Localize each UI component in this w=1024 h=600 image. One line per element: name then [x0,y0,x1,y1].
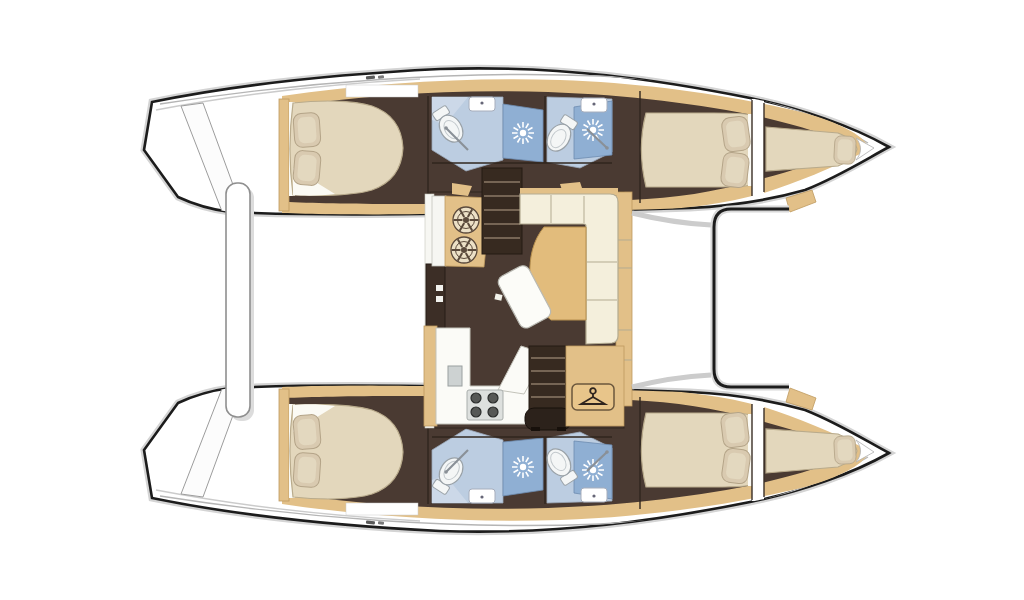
cockpit-bench [226,183,250,417]
hanger-icon [572,384,614,410]
galley-unit-counter-edge [432,196,446,266]
coaming-shadow [714,209,789,387]
companionway-hatch [525,408,571,431]
door-handle [436,296,443,302]
round-sink-wheel-icon [451,237,477,263]
galley-cabinet [424,326,437,426]
coachroof-front-coaming [714,209,789,387]
boat-floorplan-image: { "title": "Catamaran interior floor pla… [0,0,1024,600]
saloon [424,168,632,431]
stairs-to-port-hull [482,168,522,254]
round-sink-wheel-icon [453,207,479,233]
coachroof-shading [632,375,711,387]
foredeck-area [632,190,816,410]
coachroof-shading [632,213,711,225]
stove-burners-icon [467,390,503,420]
door-handle [436,285,443,291]
cockpit-area [226,183,254,421]
catamaran-floorplan: Catamaran interior floor plan, overhead … [0,0,1024,600]
galley-sink [448,366,462,386]
